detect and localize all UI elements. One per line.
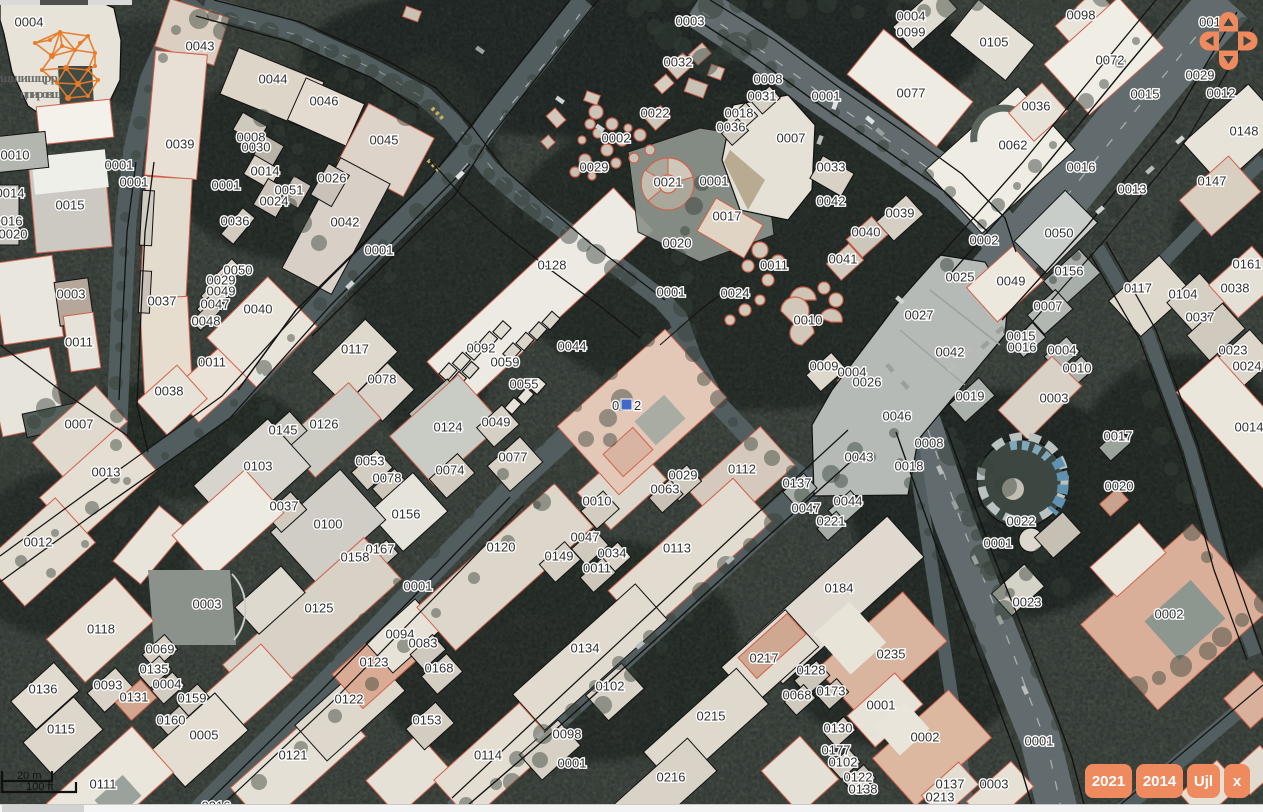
svg-text:0040: 0040: [852, 225, 881, 240]
svg-text:0001: 0001: [812, 89, 841, 104]
svg-text:2021: 2021: [1092, 773, 1125, 790]
svg-text:0014: 0014: [251, 164, 280, 179]
svg-text:0046: 0046: [310, 94, 339, 109]
svg-text:0027: 0027: [905, 308, 934, 323]
svg-text:0017: 0017: [713, 209, 742, 224]
svg-text:0001: 0001: [700, 174, 729, 189]
svg-text:0001: 0001: [558, 756, 587, 771]
svg-text:0059: 0059: [491, 355, 520, 370]
svg-text:0125: 0125: [305, 601, 334, 616]
svg-text:0069: 0069: [146, 642, 175, 657]
svg-text:0001: 0001: [1025, 734, 1054, 749]
svg-text:0: 0: [612, 398, 619, 413]
svg-text:0149: 0149: [545, 549, 574, 564]
svg-text:0007: 0007: [1034, 299, 1063, 314]
svg-text:0098: 0098: [1067, 8, 1096, 23]
svg-text:0010: 0010: [583, 494, 612, 509]
svg-text:0008: 0008: [915, 436, 944, 451]
svg-text:0016: 0016: [1008, 340, 1037, 355]
svg-text:0042: 0042: [817, 194, 846, 209]
svg-text:0045: 0045: [370, 133, 399, 148]
svg-text:0078: 0078: [373, 471, 402, 486]
svg-text:0062: 0062: [999, 138, 1028, 153]
svg-text:0147: 0147: [1198, 174, 1227, 189]
svg-text:0018: 0018: [895, 459, 924, 474]
svg-text:0063: 0063: [651, 482, 680, 497]
svg-text:0105: 0105: [980, 35, 1009, 50]
svg-text:0158: 0158: [341, 550, 370, 565]
svg-text:0047: 0047: [201, 297, 230, 312]
svg-text:0113: 0113: [663, 541, 691, 556]
svg-text:0001: 0001: [867, 698, 896, 713]
svg-text:щшишцрр: щшишцрр: [0, 70, 58, 85]
svg-text:0013: 0013: [92, 465, 121, 480]
svg-text:0049: 0049: [997, 274, 1026, 289]
svg-text:0039: 0039: [166, 137, 195, 152]
svg-text:0136: 0136: [29, 682, 58, 697]
svg-text:0047: 0047: [571, 530, 600, 545]
svg-text:0036: 0036: [1022, 99, 1051, 114]
svg-text:0011: 0011: [583, 561, 611, 576]
svg-text:0118: 0118: [87, 622, 115, 637]
svg-text:0043: 0043: [845, 450, 874, 465]
svg-text:0099: 0099: [897, 25, 926, 40]
svg-text:0003: 0003: [676, 14, 705, 29]
svg-text:0043: 0043: [186, 39, 215, 54]
svg-text:0077: 0077: [897, 86, 926, 101]
svg-text:0039: 0039: [886, 206, 915, 221]
svg-text:0002: 0002: [970, 233, 999, 248]
svg-text:0044: 0044: [558, 339, 587, 354]
svg-text:0003: 0003: [193, 597, 222, 612]
svg-text:0167: 0167: [366, 542, 395, 557]
svg-text:0005: 0005: [190, 728, 219, 743]
svg-text:0002: 0002: [602, 131, 631, 146]
svg-text:0128: 0128: [797, 663, 826, 678]
svg-text:0008: 0008: [754, 72, 783, 87]
svg-text:0153: 0153: [413, 713, 442, 728]
svg-text:0184: 0184: [825, 581, 854, 596]
svg-text:0068: 0068: [783, 688, 812, 703]
svg-text:0221: 0221: [817, 514, 846, 529]
svg-text:Ujl: Ujl: [1194, 773, 1213, 790]
svg-text:0103: 0103: [244, 459, 273, 474]
svg-text:0038: 0038: [1221, 281, 1250, 296]
svg-text:0003: 0003: [57, 287, 86, 302]
svg-text:0001: 0001: [120, 175, 149, 190]
svg-text:0117: 0117: [1124, 281, 1152, 296]
svg-text:0148: 0148: [1230, 124, 1259, 139]
svg-text:0033: 0033: [817, 160, 846, 175]
svg-text:0019: 0019: [956, 389, 985, 404]
svg-text:0015: 0015: [1131, 87, 1160, 102]
svg-text:0093: 0093: [94, 678, 123, 693]
svg-text:0014: 0014: [1235, 420, 1263, 435]
svg-text:0020: 0020: [1105, 479, 1134, 494]
svg-text:0100: 0100: [314, 517, 343, 532]
svg-text:0007: 0007: [777, 131, 806, 146]
svg-text:0078: 0078: [368, 372, 397, 387]
svg-text:100 ft: 100 ft: [26, 781, 54, 793]
svg-text:0074: 0074: [436, 463, 465, 478]
svg-text:0021: 0021: [654, 175, 683, 190]
svg-text:цпировш: цпировш: [20, 86, 62, 101]
svg-text:0023: 0023: [1013, 595, 1042, 610]
svg-text:0156: 0156: [1055, 264, 1084, 279]
svg-text:0001: 0001: [984, 536, 1013, 551]
svg-text:0037: 0037: [1186, 310, 1215, 325]
svg-text:0083: 0083: [409, 636, 438, 651]
svg-text:0024: 0024: [1233, 359, 1262, 374]
svg-text:0053: 0053: [356, 454, 385, 469]
svg-text:0038: 0038: [155, 384, 184, 399]
svg-text:x: x: [1233, 773, 1242, 790]
svg-text:0117: 0117: [341, 342, 369, 357]
svg-text:2: 2: [634, 398, 641, 413]
svg-text:0123: 0123: [360, 655, 389, 670]
svg-text:0134: 0134: [571, 641, 600, 656]
svg-text:0128: 0128: [538, 258, 567, 273]
svg-text:0215: 0215: [697, 709, 726, 724]
svg-text:0025: 0025: [946, 270, 975, 285]
svg-text:0004: 0004: [1048, 343, 1077, 358]
svg-text:0145: 0145: [269, 423, 298, 438]
svg-text:0016: 0016: [1067, 160, 1096, 175]
svg-text:0012: 0012: [24, 535, 53, 550]
svg-text:0004: 0004: [897, 9, 926, 24]
svg-text:0115: 0115: [47, 722, 75, 737]
svg-text:0007: 0007: [65, 417, 94, 432]
svg-text:0012: 0012: [1207, 86, 1236, 101]
svg-text:0168: 0168: [425, 661, 454, 676]
svg-text:0044: 0044: [834, 494, 863, 509]
svg-text:0001: 0001: [657, 285, 686, 300]
svg-text:0009: 0009: [810, 359, 839, 374]
svg-text:0077: 0077: [499, 450, 528, 465]
svg-text:0037: 0037: [270, 499, 299, 514]
svg-text:0040: 0040: [244, 302, 273, 317]
svg-text:0022: 0022: [641, 106, 670, 121]
svg-text:0004: 0004: [153, 677, 182, 692]
svg-text:0173: 0173: [817, 684, 846, 699]
svg-text:0046: 0046: [883, 409, 912, 424]
svg-text:0130: 0130: [824, 721, 853, 736]
svg-text:0023: 0023: [1219, 343, 1248, 358]
svg-text:0036: 0036: [221, 214, 250, 229]
svg-text:0010: 0010: [1063, 361, 1092, 376]
svg-text:0011: 0011: [198, 355, 226, 370]
svg-text:0042: 0042: [936, 345, 965, 360]
svg-text:0014: 0014: [0, 186, 24, 201]
svg-text:0026: 0026: [318, 171, 347, 186]
svg-text:0131: 0131: [120, 690, 149, 705]
svg-text:0098: 0098: [553, 727, 582, 742]
svg-text:0041: 0041: [829, 252, 858, 267]
svg-text:0003: 0003: [1040, 391, 1069, 406]
svg-text:0055: 0055: [510, 377, 539, 392]
svg-text:0122: 0122: [335, 692, 364, 707]
svg-text:0015: 0015: [56, 198, 85, 213]
svg-text:0011: 0011: [760, 258, 788, 273]
svg-text:0029: 0029: [580, 160, 609, 175]
svg-text:0048: 0048: [192, 314, 221, 329]
svg-text:0020: 0020: [663, 236, 692, 251]
svg-text:0001: 0001: [404, 579, 433, 594]
svg-text:0029: 0029: [1186, 68, 1215, 83]
svg-text:0001: 0001: [105, 158, 134, 173]
svg-text:0138: 0138: [849, 782, 878, 797]
svg-text:0111: 0111: [90, 777, 117, 792]
svg-text:2014: 2014: [1143, 773, 1177, 790]
svg-text:0001: 0001: [365, 243, 394, 258]
svg-text:0013: 0013: [1118, 182, 1147, 197]
svg-text:0022: 0022: [1007, 514, 1036, 529]
svg-text:0026: 0026: [853, 375, 882, 390]
svg-text:0010: 0010: [794, 313, 823, 328]
svg-text:0137: 0137: [783, 476, 812, 491]
svg-text:0004: 0004: [15, 15, 44, 30]
svg-text:0216: 0216: [657, 770, 686, 785]
svg-text:0126: 0126: [310, 417, 339, 432]
svg-text:0217: 0217: [750, 651, 779, 666]
svg-text:0031: 0031: [748, 89, 777, 104]
svg-text:0159: 0159: [178, 691, 207, 706]
svg-text:0235: 0235: [877, 647, 906, 662]
svg-text:0044: 0044: [259, 72, 288, 87]
svg-text:0161: 0161: [1233, 257, 1262, 272]
svg-text:0102: 0102: [829, 755, 858, 770]
svg-text:0010: 0010: [1, 148, 30, 163]
svg-text:0011: 0011: [65, 335, 93, 350]
svg-text:001: 001: [1199, 15, 1221, 30]
svg-text:0024: 0024: [260, 194, 289, 209]
svg-text:0114: 0114: [474, 748, 502, 763]
svg-text:0017: 0017: [1104, 429, 1133, 444]
svg-text:0213: 0213: [926, 790, 955, 805]
svg-text:0030: 0030: [242, 140, 271, 155]
svg-text:0124: 0124: [434, 420, 463, 435]
svg-text:0024: 0024: [721, 286, 750, 301]
svg-text:0020: 0020: [0, 227, 27, 242]
svg-text:0032: 0032: [664, 55, 693, 70]
svg-text:0002: 0002: [1155, 607, 1184, 622]
svg-text:0002: 0002: [911, 730, 940, 745]
svg-text:0029: 0029: [669, 468, 698, 483]
svg-text:0112: 0112: [728, 462, 756, 477]
svg-text:0042: 0042: [331, 215, 360, 230]
svg-text:0034: 0034: [598, 546, 627, 561]
svg-text:0104: 0104: [1169, 287, 1198, 302]
svg-text:0018: 0018: [725, 106, 754, 121]
svg-text:0003: 0003: [980, 777, 1009, 792]
svg-text:0156: 0156: [392, 507, 421, 522]
svg-text:0050: 0050: [1045, 226, 1074, 241]
svg-text:0001: 0001: [212, 178, 241, 193]
svg-text:0036: 0036: [717, 120, 746, 135]
svg-text:0160: 0160: [157, 713, 186, 728]
svg-text:0120: 0120: [487, 540, 516, 555]
svg-text:0072: 0072: [1096, 53, 1125, 68]
svg-text:0049: 0049: [482, 415, 511, 430]
svg-text:0092: 0092: [467, 341, 496, 356]
svg-text:0121: 0121: [279, 748, 308, 763]
svg-text:0037: 0037: [148, 294, 177, 309]
svg-text:0135: 0135: [140, 662, 169, 677]
svg-text:0102: 0102: [596, 679, 625, 694]
